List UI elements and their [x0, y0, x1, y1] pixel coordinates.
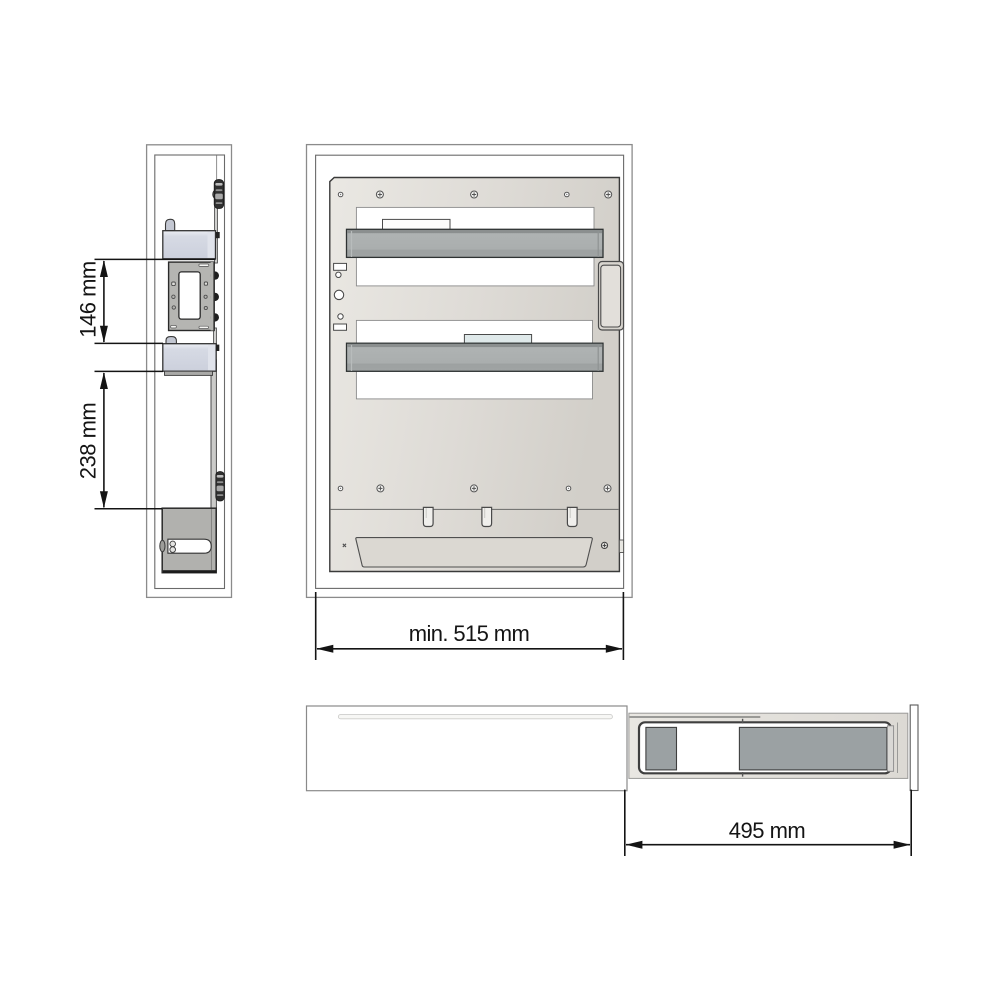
svg-text:238 mm: 238 mm	[76, 403, 101, 479]
svg-text:495 mm: 495 mm	[729, 818, 805, 843]
svg-text:146 mm: 146 mm	[76, 261, 101, 337]
svg-text:min. 515 mm: min. 515 mm	[409, 621, 530, 646]
